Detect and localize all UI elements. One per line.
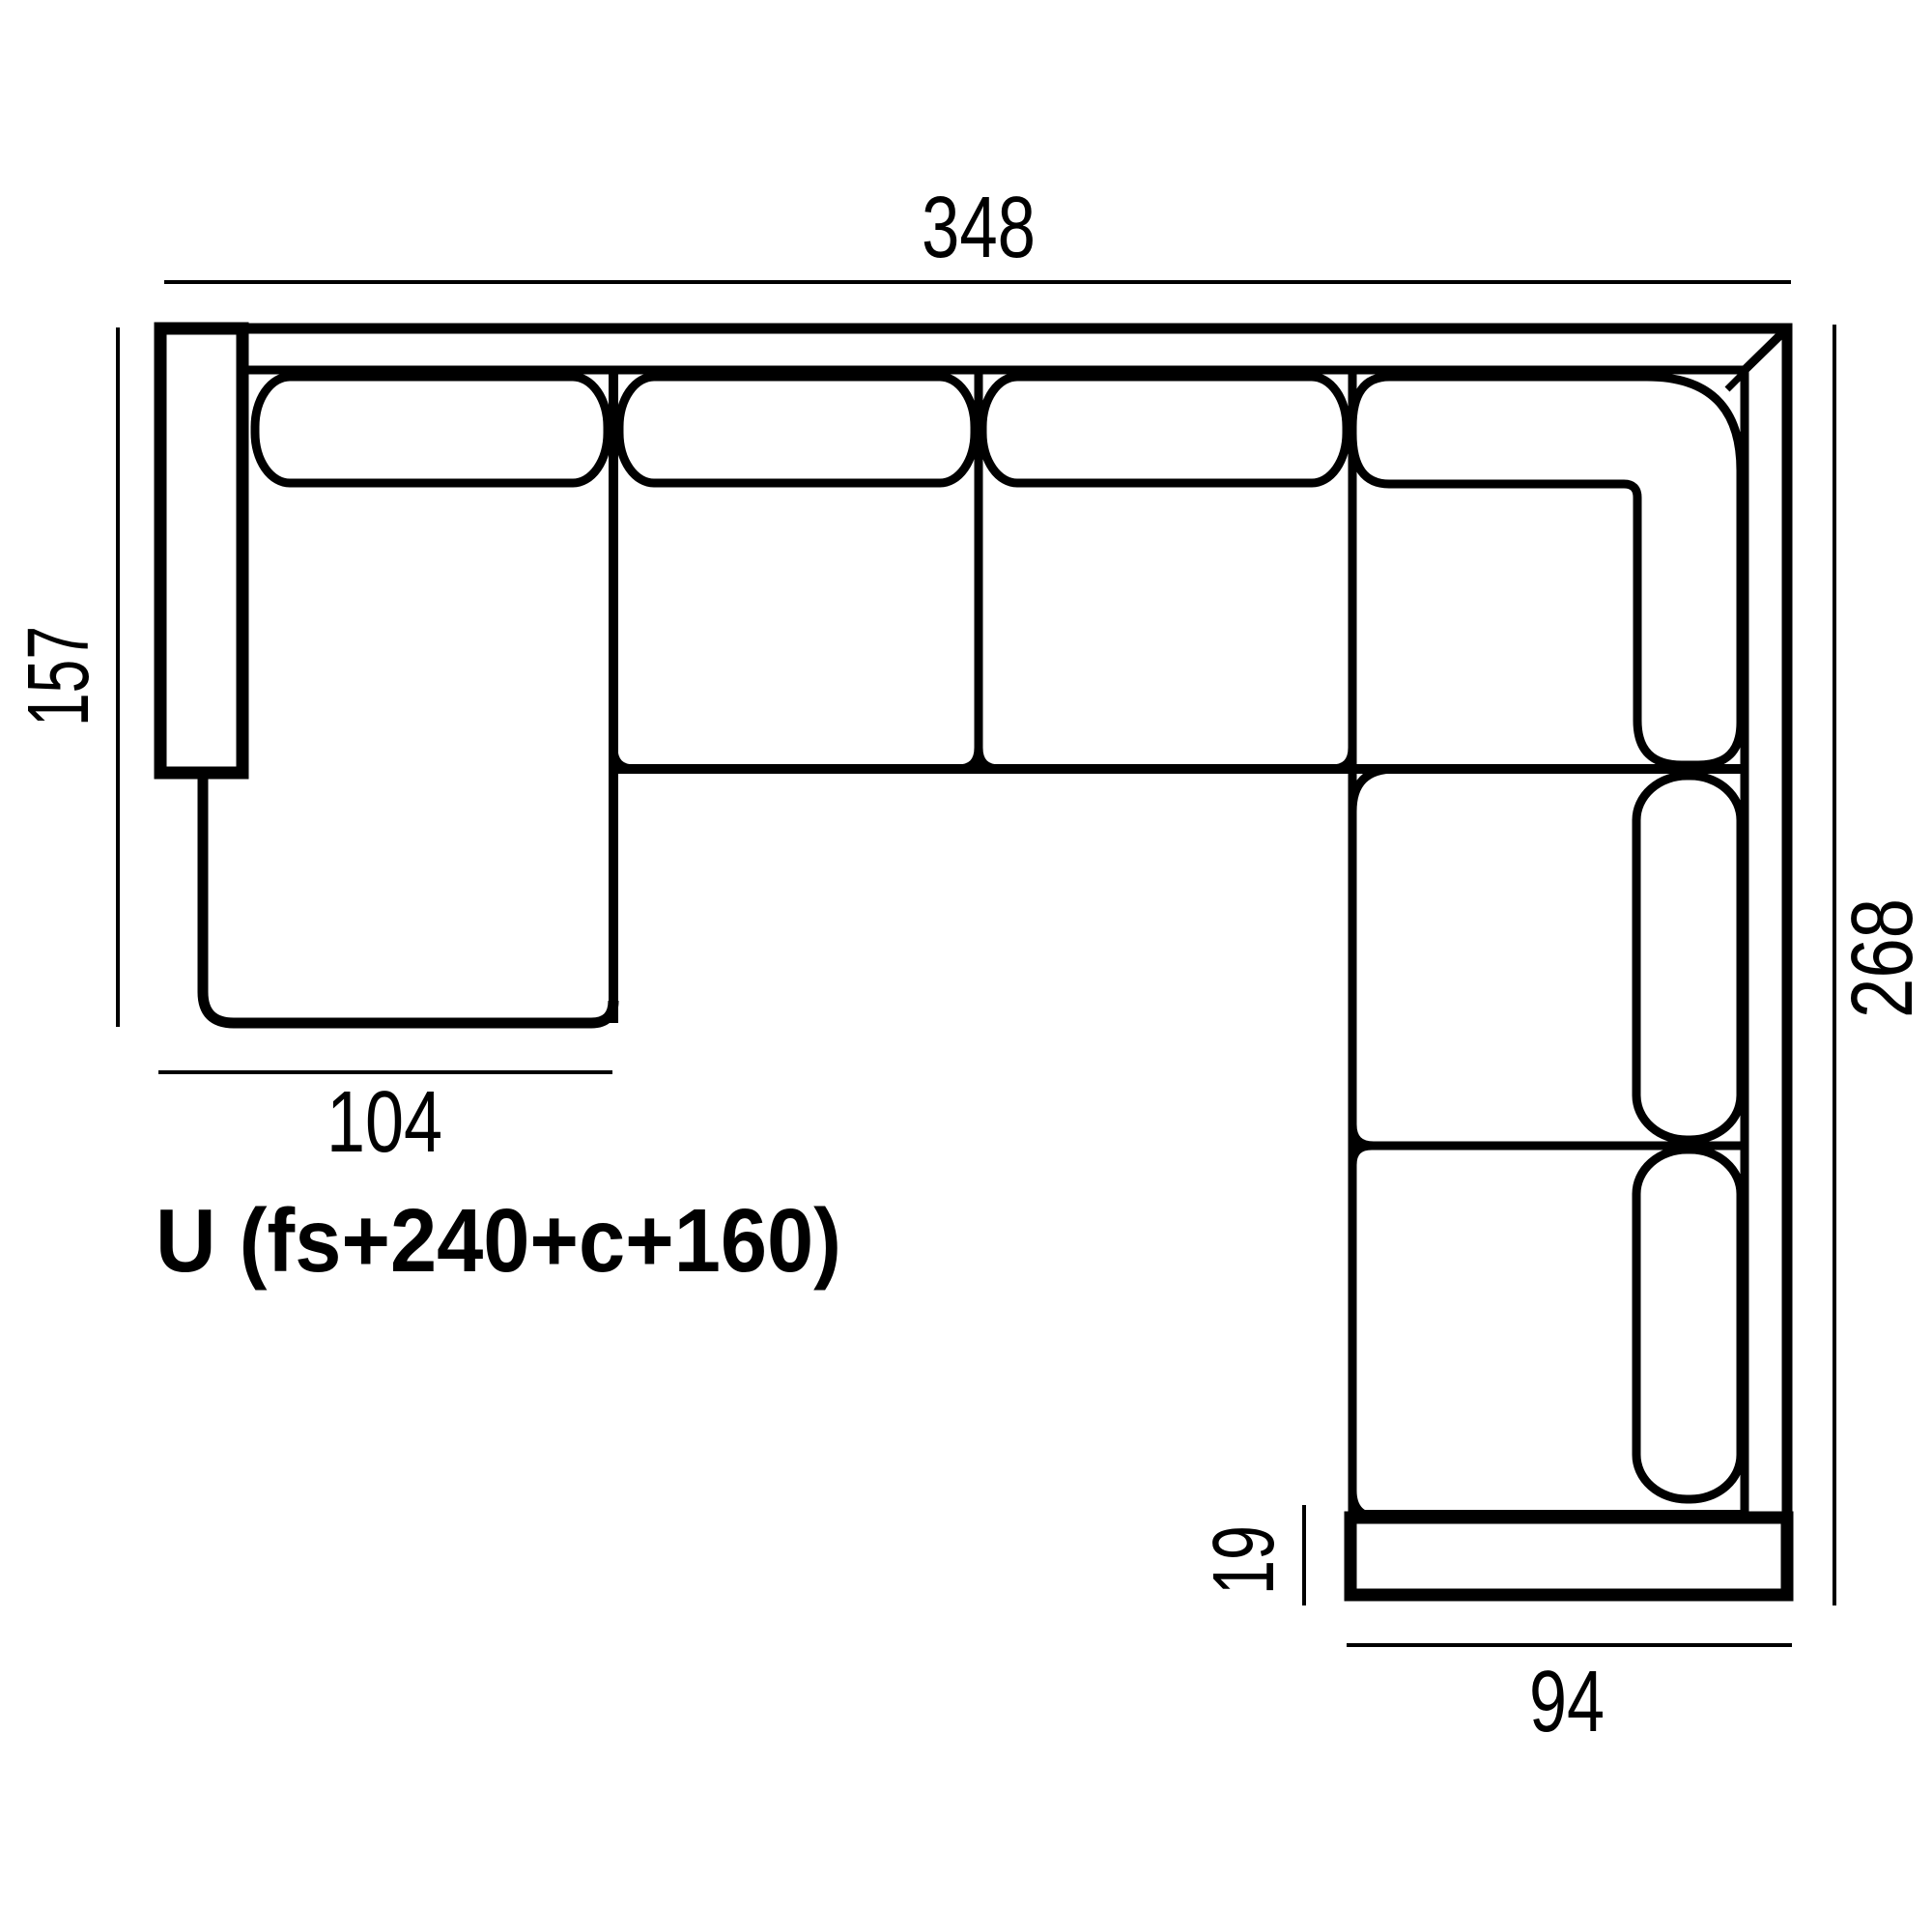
svg-text:94: 94 [1529, 1654, 1605, 1750]
svg-text:268: 268 [1834, 898, 1931, 1018]
svg-text:348: 348 [922, 180, 1036, 276]
svg-text:U (fs+240+c+160): U (fs+240+c+160) [156, 1190, 841, 1291]
svg-text:19: 19 [1196, 1525, 1293, 1595]
svg-text:157: 157 [11, 626, 107, 726]
svg-text:104: 104 [327, 1074, 442, 1171]
